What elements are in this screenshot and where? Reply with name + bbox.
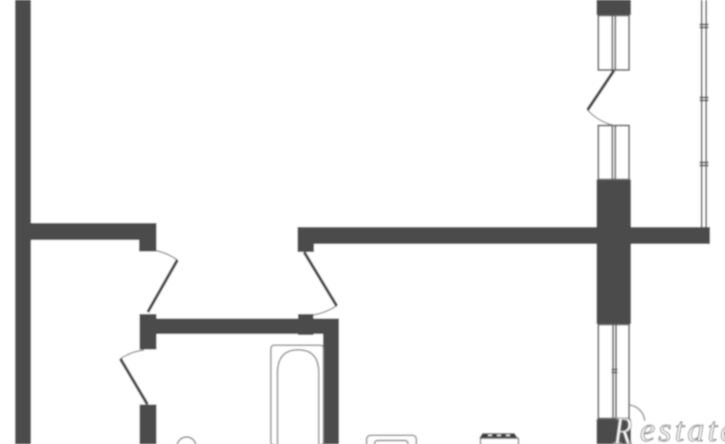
- svg-text:estate: estate: [640, 412, 725, 444]
- svg-text:R: R: [613, 409, 632, 444]
